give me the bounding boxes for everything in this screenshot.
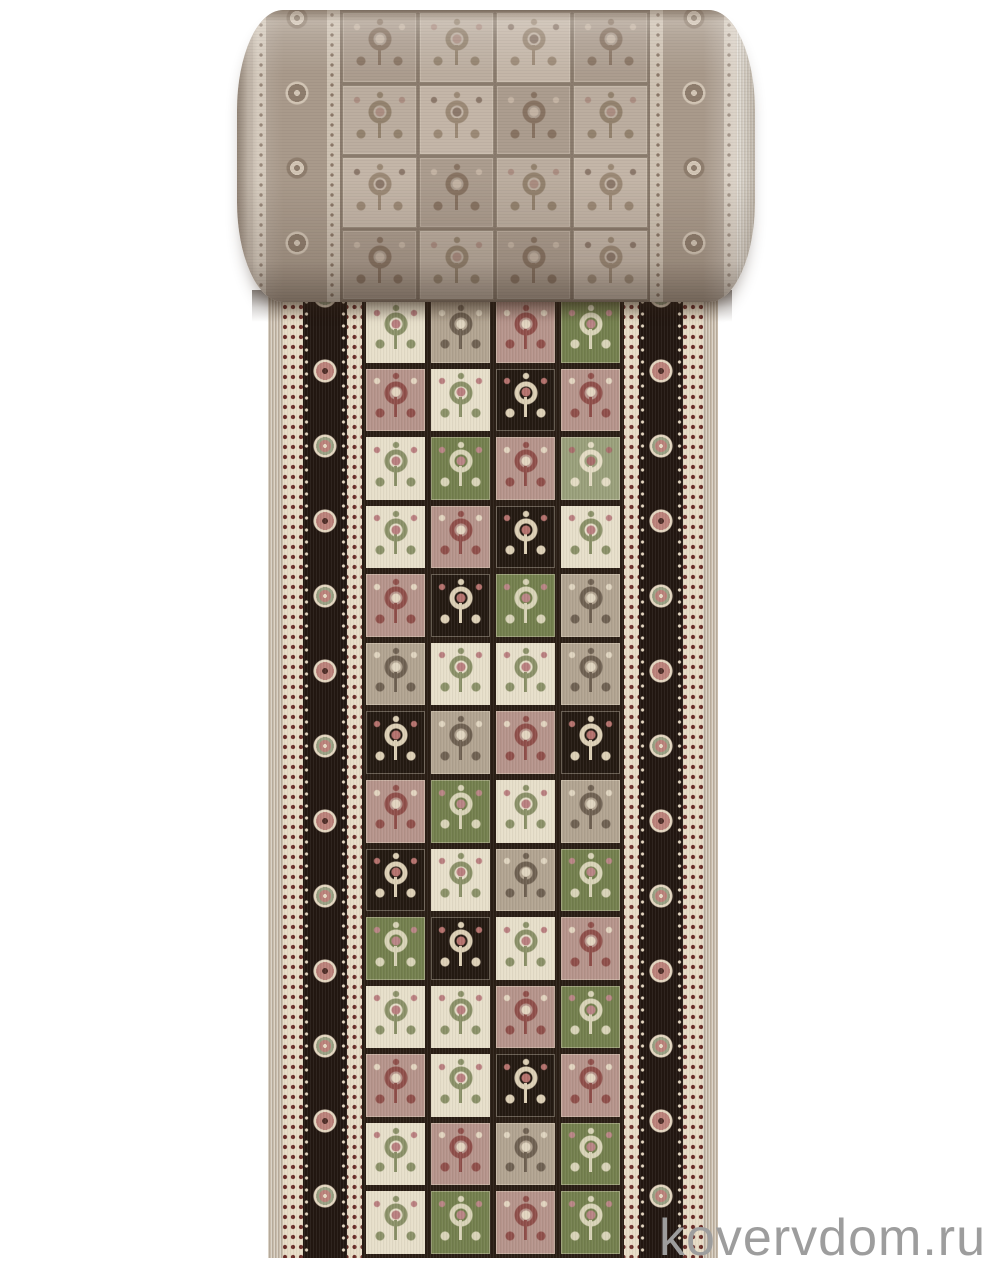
carpet-tile-green xyxy=(559,1121,622,1188)
carpet-runner-flat xyxy=(268,296,718,1258)
carpet-tile-green xyxy=(559,1189,622,1256)
carpet-tile-rose xyxy=(494,298,557,365)
carpet-tile-cream xyxy=(494,778,557,845)
carpet-tile-cream xyxy=(429,847,492,914)
carpet-tile-green xyxy=(559,984,622,1051)
carpet-tile-rm1 xyxy=(419,230,494,301)
carpet-tile-rm3 xyxy=(342,157,417,228)
carpet-tile-rm1 xyxy=(419,12,494,83)
carpet-tile-cream xyxy=(364,504,427,571)
carpet-tile-rose xyxy=(429,504,492,571)
carpet-tile-rose xyxy=(364,367,427,434)
carpet-tile-rm3 xyxy=(573,157,648,228)
carpet-tile-black xyxy=(364,709,427,776)
carpet-tile-taupe xyxy=(559,572,622,639)
runner-border-band-left xyxy=(303,296,347,1258)
carpet-tile-sage xyxy=(559,435,622,502)
carpet-tile-taupe xyxy=(559,641,622,708)
carpet-tile-green xyxy=(429,435,492,502)
carpet-tile-rm2 xyxy=(496,230,571,301)
carpet-tile-rm2 xyxy=(342,12,417,83)
carpet-tile-cream xyxy=(559,504,622,571)
carpet-tile-cream xyxy=(364,1189,427,1256)
carpet-tile-cream xyxy=(494,641,557,708)
carpet-tile-taupe xyxy=(494,1121,557,1188)
runner-guard-outer-left xyxy=(283,296,303,1258)
carpet-tile-cream xyxy=(429,984,492,1051)
carpet-tile-rm3 xyxy=(496,12,571,83)
carpet-tile-rose xyxy=(559,1052,622,1119)
roll-border-left xyxy=(253,10,340,302)
carpet-tile-rose xyxy=(559,367,622,434)
runner-border-band-right xyxy=(639,296,683,1258)
roll-border-right xyxy=(650,10,737,302)
runner-field xyxy=(362,296,624,1258)
carpet-tile-rm3 xyxy=(419,85,494,156)
carpet-tile-cream xyxy=(364,298,427,365)
carpet-tile-taupe xyxy=(429,298,492,365)
watermark-text: kovervdom.ru xyxy=(659,1212,986,1264)
carpet-tile-black xyxy=(494,367,557,434)
carpet-tile-black xyxy=(429,915,492,982)
carpet-tile-rose xyxy=(494,1189,557,1256)
carpet-tile-rm2 xyxy=(342,230,417,301)
carpet-tile-black xyxy=(559,709,622,776)
carpet-tile-taupe xyxy=(364,641,427,708)
carpet-tile-black xyxy=(494,504,557,571)
carpet-tile-green xyxy=(559,847,622,914)
carpet-tile-rose xyxy=(559,915,622,982)
carpet-tile-cream xyxy=(364,435,427,502)
carpet-tile-cream xyxy=(429,367,492,434)
carpet-tile-rose xyxy=(494,709,557,776)
roll-end-left xyxy=(237,10,253,302)
carpet-roll xyxy=(237,10,755,302)
carpet-tile-rm1 xyxy=(342,85,417,156)
roll-field xyxy=(340,10,650,302)
carpet-tile-green xyxy=(559,298,622,365)
carpet-tile-taupe xyxy=(559,778,622,845)
carpet-tile-cream xyxy=(364,984,427,1051)
carpet-tile-rose xyxy=(494,984,557,1051)
carpet-tile-rm2 xyxy=(573,12,648,83)
carpet-tile-black xyxy=(364,847,427,914)
carpet-tile-rm1 xyxy=(573,85,648,156)
carpet-tile-taupe xyxy=(429,709,492,776)
carpet-tile-cream xyxy=(429,641,492,708)
carpet-tile-black xyxy=(429,572,492,639)
carpet-tile-black xyxy=(494,1052,557,1119)
carpet-tile-rm2 xyxy=(419,157,494,228)
carpet-tile-rose xyxy=(494,435,557,502)
runner-guard-inner-right xyxy=(624,296,639,1258)
carpet-tile-rm3 xyxy=(573,230,648,301)
carpet-tile-cream xyxy=(494,915,557,982)
runner-selvage-left xyxy=(268,296,283,1258)
carpet-tile-green xyxy=(429,1189,492,1256)
carpet-tile-rm2 xyxy=(496,85,571,156)
runner-selvage-right xyxy=(703,296,718,1258)
carpet-tile-green xyxy=(494,572,557,639)
carpet-tile-green xyxy=(429,778,492,845)
carpet-tile-rose xyxy=(364,778,427,845)
runner-guard-inner-left xyxy=(347,296,362,1258)
carpet-tile-cream xyxy=(429,1052,492,1119)
carpet-tile-rose xyxy=(364,572,427,639)
carpet-tile-rm1 xyxy=(496,157,571,228)
carpet-tile-rose xyxy=(364,1052,427,1119)
carpet-tile-taupe xyxy=(494,847,557,914)
runner-guard-outer-right xyxy=(683,296,703,1258)
carpet-tile-green xyxy=(364,915,427,982)
carpet-tile-cream xyxy=(364,1121,427,1188)
carpet-tile-rose xyxy=(429,1121,492,1188)
roll-selvage-right xyxy=(737,10,755,302)
product-photo-stage: kovervdom.ru xyxy=(0,0,986,1280)
